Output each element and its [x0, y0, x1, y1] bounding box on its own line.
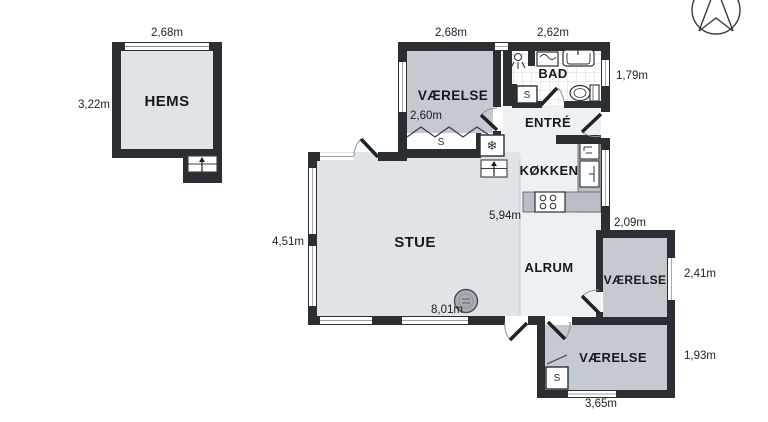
- floor-plan-drawing: HEMS 2,68m 3,22m: [0, 0, 768, 422]
- dim-stue-height: 4,51m: [272, 236, 304, 248]
- window-bad: [602, 60, 609, 86]
- window-stue-bottom-1: [320, 317, 372, 324]
- room-entre-label: ENTRÉ: [525, 115, 571, 130]
- closet-s-se-label: S: [554, 373, 561, 384]
- window-hems-top: [125, 43, 209, 50]
- washbasin-icon: [537, 52, 558, 66]
- dim-vaerelse-se-height: 1,93m: [684, 350, 716, 362]
- window-vaerelse-se: [568, 391, 616, 397]
- room-alrum-label: ALRUM: [525, 260, 574, 275]
- loft-ladder-stue-icon: [481, 160, 507, 177]
- dim-bad-height: 1,79m: [616, 70, 648, 82]
- dim-stue-depth: 5,94m: [489, 210, 521, 222]
- room-vaerelse-se-label: VÆRELSE: [579, 350, 647, 365]
- closet-s-bad: S: [517, 86, 537, 103]
- window-stue-left-2: [309, 246, 316, 306]
- dim-stue-width: 8,01m: [431, 304, 463, 316]
- window-vaerelse-e: [668, 258, 675, 300]
- snowflake-icon: ❄: [487, 139, 498, 154]
- building-annex: HEMS 2,68m 3,22m: [78, 27, 222, 183]
- dim-vaerelse-nw-inner: 2,60m: [410, 110, 442, 122]
- toilet-icon: [570, 85, 599, 101]
- dim-hems-height: 3,22m: [78, 99, 110, 111]
- window-vaerelse-nw: [399, 62, 406, 112]
- room-vaerelse-e-label: VÆRELSE: [604, 273, 667, 287]
- north-arrow-icon: [692, 0, 740, 34]
- door-stue-bottom: [505, 316, 528, 340]
- stove-icon: [535, 192, 565, 212]
- kitchen-sink-icon: [580, 142, 599, 159]
- dim-hems-width: 2,68m: [151, 27, 183, 39]
- window-stue-left-1: [309, 168, 316, 234]
- room-kokken-label: KØKKEN: [520, 163, 579, 178]
- room-bad-label: BAD: [538, 66, 567, 81]
- window-kokken: [602, 150, 609, 206]
- dim-vaerelse-e-width: 2,09m: [614, 217, 646, 229]
- room-hems-label: HEMS: [145, 93, 190, 110]
- closet-s-bad-label: S: [524, 90, 531, 101]
- building-main: ❄ S S S VÆRELSE BAD ENTRÉ KØKKEN ST: [272, 27, 716, 410]
- room-vaerelse-nw-label: VÆRELSE: [418, 88, 488, 103]
- snowflake-box: ❄: [480, 135, 504, 156]
- window-stue-top: [320, 153, 354, 160]
- window-stue-bottom-2: [402, 317, 468, 324]
- closet-s-nw-label: S: [438, 137, 445, 148]
- dim-vaerelse-e-height: 2,41m: [684, 268, 716, 280]
- closet-s-se: S: [546, 367, 568, 389]
- dim-bad-width: 2,62m: [537, 27, 569, 39]
- floor-plan: HEMS 2,68m 3,22m: [0, 0, 768, 422]
- fridge-icon: [580, 161, 599, 187]
- loft-ladder-icon: [188, 156, 217, 172]
- sink-icon: [563, 50, 594, 66]
- dim-vaerelse-nw-width: 2,68m: [435, 27, 467, 39]
- dim-vaerelse-se-width: 3,65m: [585, 398, 617, 410]
- room-stue-label: STUE: [394, 234, 436, 251]
- window-top-corridor: [495, 43, 508, 50]
